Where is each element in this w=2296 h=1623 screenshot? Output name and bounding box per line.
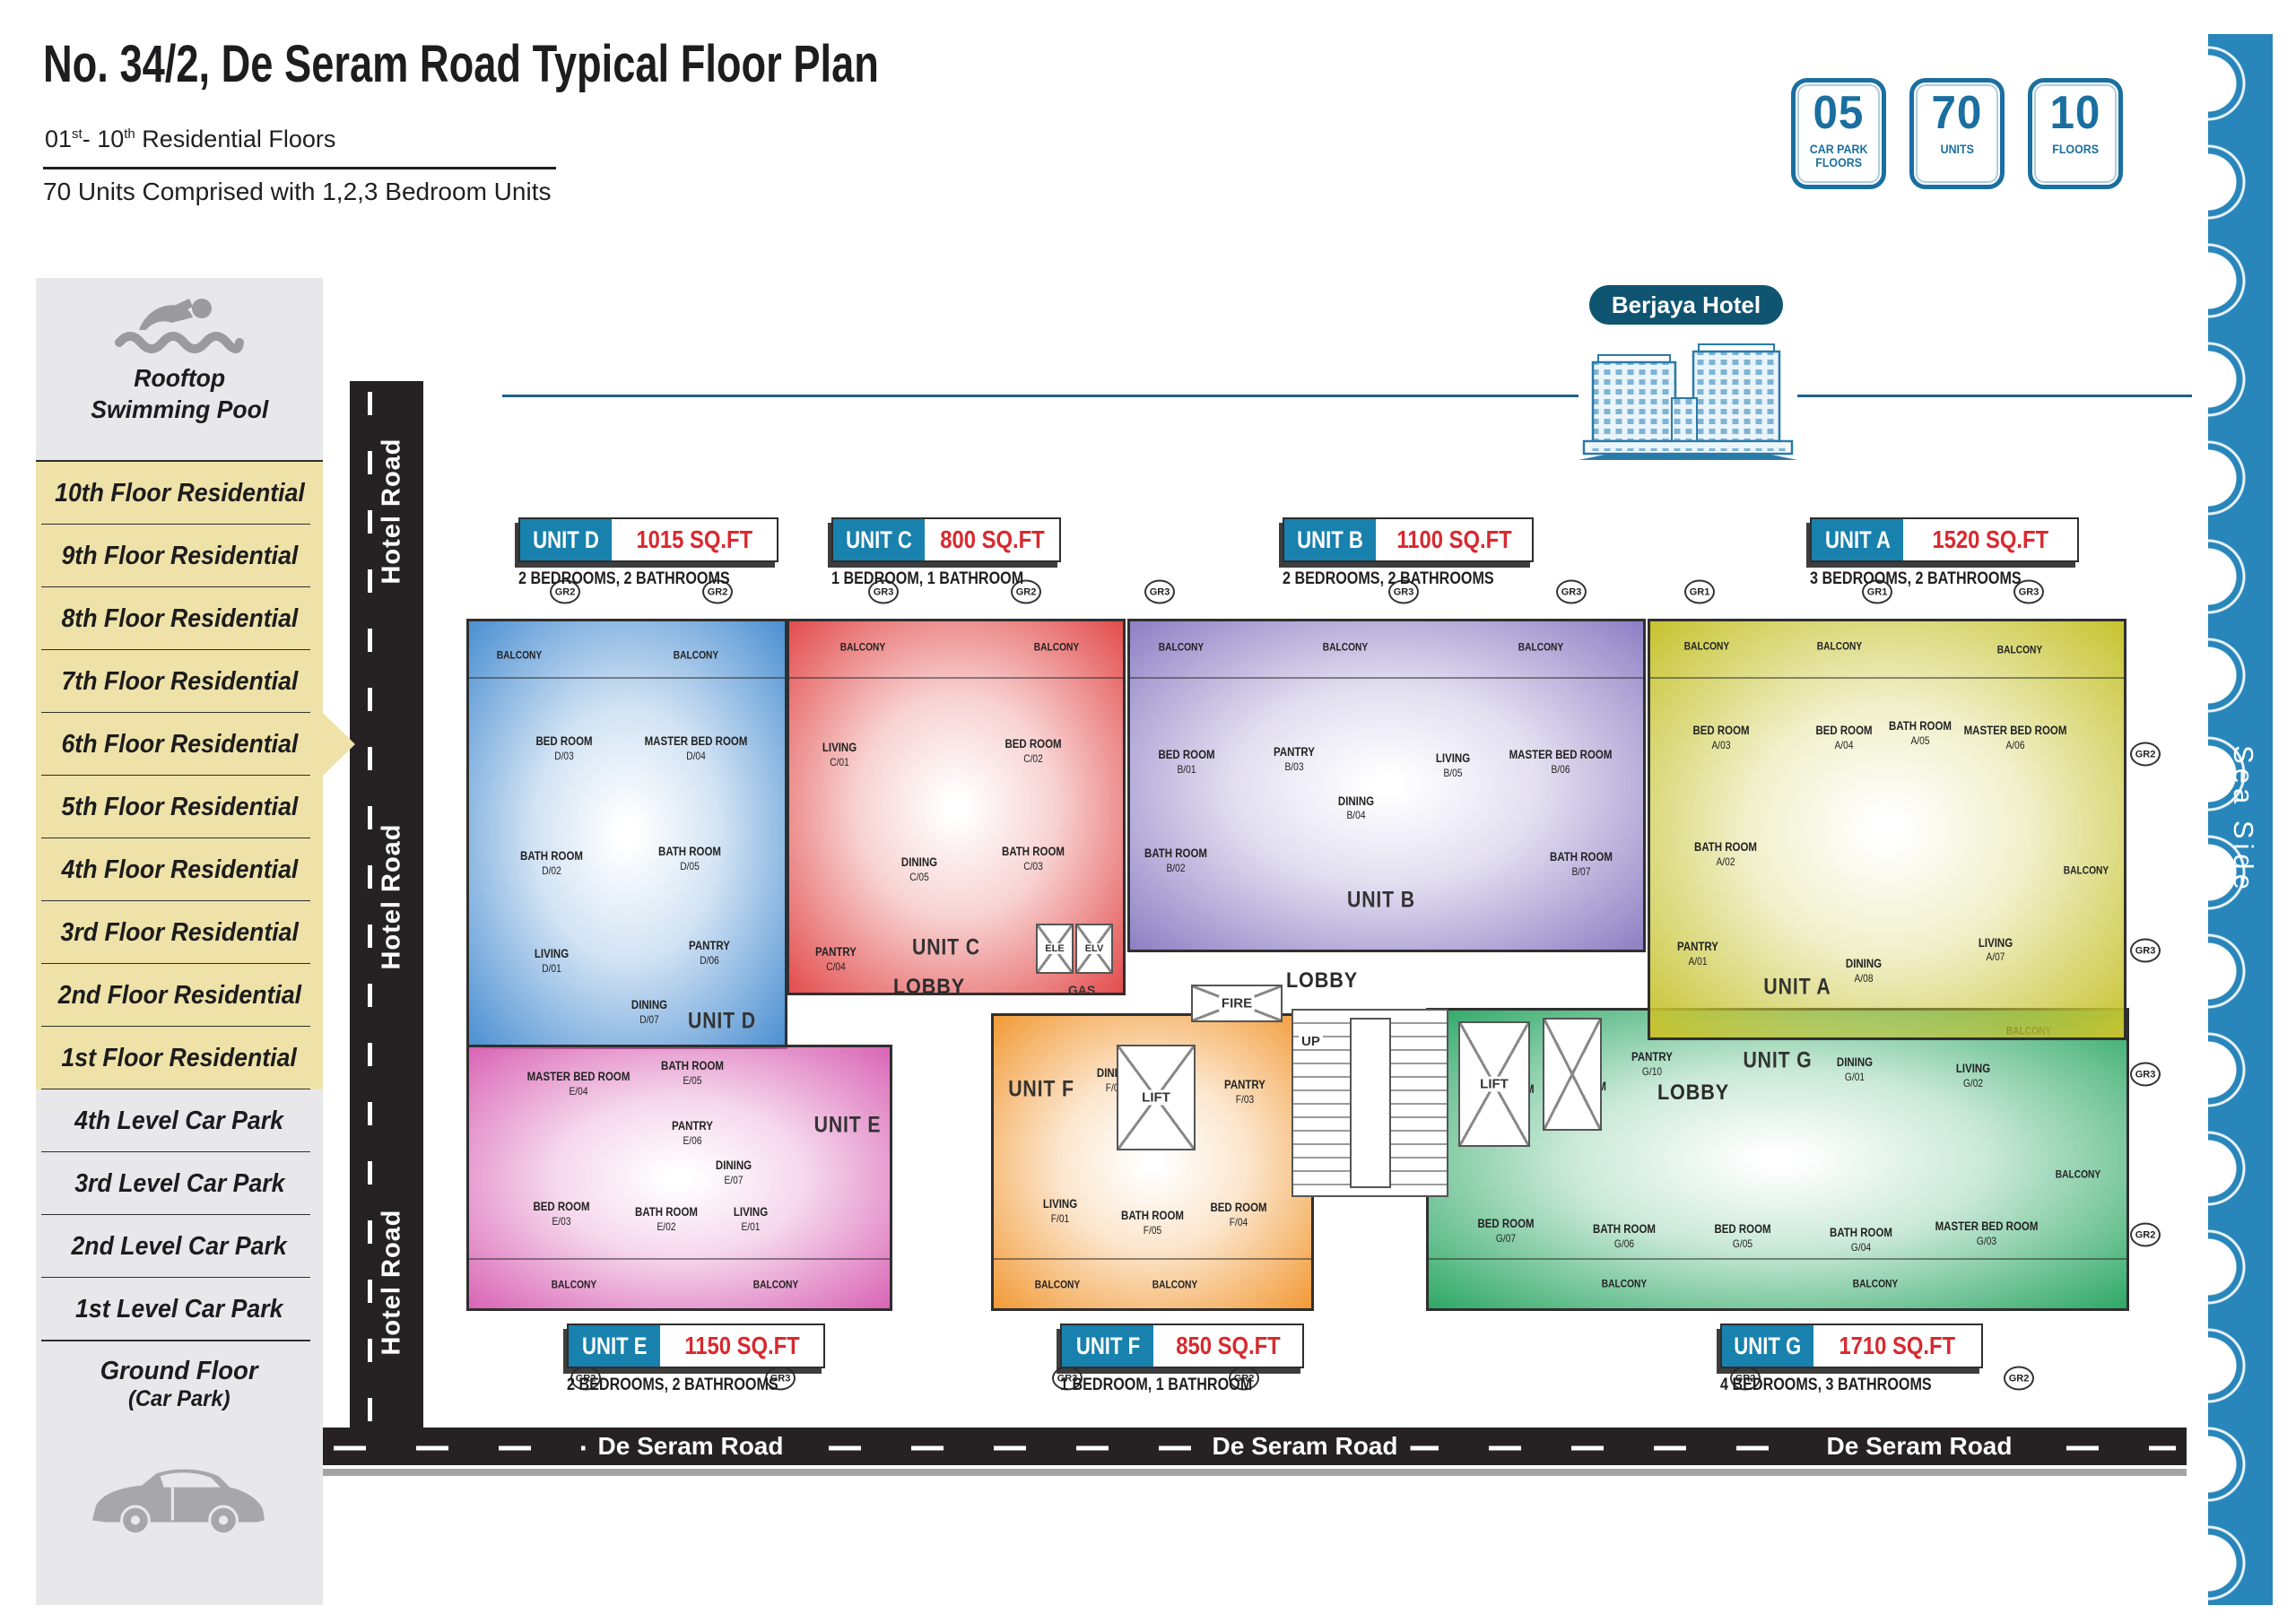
room-label: BED ROOMD/03 xyxy=(535,734,592,763)
unit-a-area: BALCONYBALCONYBALCONYBED ROOMA/03BED ROO… xyxy=(1648,619,2126,1040)
unit-name-label: UNIT B xyxy=(1347,888,1415,914)
grid-marker: GR2 xyxy=(2130,742,2161,767)
balcony-divider xyxy=(469,677,785,679)
unit-label-name: UNIT D xyxy=(520,519,612,560)
fire-lobby: FIRE xyxy=(1191,985,1283,1022)
room-label: DININGD/07 xyxy=(631,998,667,1027)
unit-config-label: 2 BEDROOMS, 2 BATHROOMS xyxy=(518,569,730,589)
room-label: PANTRYB/03 xyxy=(1274,745,1315,774)
unit-e-label-box: UNIT E1150 SQ.FT xyxy=(567,1324,825,1368)
balcony-divider xyxy=(1130,677,1643,679)
unit-a-label-box: UNIT A1520 SQ.FT xyxy=(1810,517,2079,562)
lift-shaft: LIFT xyxy=(1458,1021,1530,1147)
lobby-label: LOBBY xyxy=(1286,968,1358,994)
room-label: BED ROOMB/01 xyxy=(1158,748,1214,777)
hotel-towers-icon xyxy=(1578,328,1797,463)
room-label: BED ROOMC/02 xyxy=(1004,737,1061,766)
gas-label: GAS xyxy=(1068,983,1095,997)
grid-marker: GR2 xyxy=(2130,1223,2161,1247)
room-label: BED ROOMG/05 xyxy=(1715,1222,1771,1251)
room-label: MASTER BED ROOME/04 xyxy=(527,1070,631,1098)
room-label: BATH ROOMA/02 xyxy=(1695,840,1758,869)
room-label: LIVINGD/01 xyxy=(534,947,568,976)
room-label: BALCONY xyxy=(2064,864,2109,878)
room-label: BALCONY xyxy=(1684,639,1729,653)
room-label: BATH ROOME/05 xyxy=(661,1059,724,1088)
room-label: BED ROOME/03 xyxy=(534,1200,590,1228)
unit-label-area: 1150 SQ.FT xyxy=(660,1325,823,1367)
unit-config-label: 2 BEDROOMS, 2 BATHROOMS xyxy=(567,1376,778,1395)
room-label: PANTRYD/06 xyxy=(689,939,730,968)
unit-name-label: UNIT G xyxy=(1743,1048,1812,1074)
room-label: BALCONY xyxy=(1817,639,1862,653)
unit-label-name: UNIT A xyxy=(1812,519,1903,560)
room-label: MASTER BED ROOMB/06 xyxy=(1509,748,1613,777)
balcony-divider xyxy=(789,677,1123,679)
room-label: DININGA/08 xyxy=(1846,957,1882,985)
unit-config-label: 2 BEDROOMS, 2 BATHROOMS xyxy=(1283,569,1494,589)
unit-d-label-box: UNIT D1015 SQ.FT xyxy=(518,517,778,562)
unit-label-name: UNIT E xyxy=(569,1325,660,1367)
unit-config-label: 1 BEDROOM, 1 BATHROOM xyxy=(1060,1376,1252,1395)
unit-b-label-box: UNIT B1100 SQ.FT xyxy=(1283,517,1534,562)
room-label: BED ROOMA/04 xyxy=(1816,724,1873,752)
unit-d-area: BALCONYBALCONYBED ROOMD/03MASTER BED ROO… xyxy=(466,619,787,1049)
room-label: BED ROOMG/07 xyxy=(1477,1217,1534,1245)
lobby-label: LOBBY xyxy=(893,975,965,1000)
room-label: BALCONY xyxy=(2055,1167,2100,1181)
unit-label-area: 1015 SQ.FT xyxy=(612,519,777,560)
lift-shaft: LIFT xyxy=(1117,1045,1196,1150)
room-label: BALCONY xyxy=(1033,640,1078,654)
room-label: MASTER BED ROOMD/04 xyxy=(645,734,748,763)
room-label: BALCONY xyxy=(753,1278,798,1291)
room-label: BATH ROOMG/06 xyxy=(1593,1222,1656,1251)
unit-name-label: UNIT F xyxy=(1008,1076,1074,1102)
room-label: BALCONY xyxy=(1159,641,1204,655)
grid-marker: GR2 xyxy=(2004,1367,2034,1391)
stair-rail xyxy=(1350,1018,1391,1188)
room-label: BALCONY xyxy=(1323,641,1368,655)
room-label: PANTRYF/03 xyxy=(1224,1078,1265,1107)
room-label: DININGC/05 xyxy=(901,855,937,884)
balcony-divider xyxy=(469,1258,890,1260)
room-label: LIVINGF/01 xyxy=(1043,1197,1077,1226)
room-label: PANTRYA/01 xyxy=(1677,940,1718,968)
grid-marker: GR3 xyxy=(2130,1063,2161,1087)
shaft-label: ELV xyxy=(1083,943,1107,954)
room-label: LIVINGG/02 xyxy=(1956,1062,1990,1090)
unit-name-label: UNIT D xyxy=(688,1008,756,1034)
room-label: BALCONY xyxy=(1035,1278,1080,1291)
room-label: DININGB/04 xyxy=(1338,794,1374,823)
unit-name-label: UNIT C xyxy=(912,935,980,961)
room-label: PANTRYC/04 xyxy=(815,945,857,974)
room-label: BATH ROOMC/03 xyxy=(1002,845,1065,873)
unit-label-name: UNIT C xyxy=(833,519,925,560)
unit-config-label: 3 BEDROOMS, 2 BATHROOMS xyxy=(1810,569,2022,589)
room-label: BALCONY xyxy=(552,1278,596,1291)
room-label: BATH ROOMA/05 xyxy=(1889,719,1952,748)
room-label: BALCONY xyxy=(674,648,718,662)
grid-marker: GR3 xyxy=(1144,580,1175,604)
room-label: BATH ROOMD/02 xyxy=(520,849,583,878)
floor-plan-poster: { "accent": {"blue":"#1a6fa0","teal":"#1… xyxy=(0,0,2296,1623)
unit-config-label: 1 BEDROOM, 1 BATHROOM xyxy=(831,569,1023,589)
balcony-divider xyxy=(994,1258,1311,1260)
unit-name-label: UNIT A xyxy=(1763,975,1831,1001)
room-label: BALCONY xyxy=(1152,1278,1197,1291)
shaft-label: ELE xyxy=(1042,943,1066,954)
grid-marker: GR3 xyxy=(2130,939,2161,963)
unit-label-area: 850 SQ.FT xyxy=(1153,1325,1302,1367)
unit-config-label: 4 BEDROOMS, 3 BATHROOMS xyxy=(1720,1376,1932,1395)
lift-label: LIFT xyxy=(1477,1077,1511,1092)
unit-f-label-box: UNIT F850 SQ.FT xyxy=(1060,1324,1304,1368)
room-label: BALCONY xyxy=(1853,1278,1898,1291)
room-label: BALCONY xyxy=(1602,1278,1647,1291)
fire-label: FIRE xyxy=(1219,996,1255,1011)
room-label: MASTER BED ROOMA/06 xyxy=(1963,724,2066,752)
unit-label-name: UNIT G xyxy=(1722,1325,1813,1367)
stairs-up-label: UP xyxy=(1299,1034,1323,1049)
floor-plan: BALCONYBALCONYBED ROOMD/03MASTER BED ROO… xyxy=(0,0,2296,1623)
grid-marker: GR1 xyxy=(1684,580,1715,604)
room-label: DININGE/07 xyxy=(716,1159,752,1187)
grid-marker: GR3 xyxy=(1556,580,1587,604)
room-label: BATH ROOMF/05 xyxy=(1121,1210,1184,1238)
room-label: LIVINGB/05 xyxy=(1436,751,1470,780)
room-label: BED ROOMA/03 xyxy=(1693,724,1750,752)
unit-c-label-box: UNIT C800 SQ.FT xyxy=(831,517,1061,562)
room-label: PANTRYE/06 xyxy=(672,1119,713,1148)
lift-label: LIFT xyxy=(1139,1090,1173,1106)
room-label: BALCONY xyxy=(840,640,885,654)
room-label: BALCONY xyxy=(497,648,542,662)
room-label: LIVINGC/01 xyxy=(822,741,857,769)
unit-g-area: PANTRYG/10DININGG/01LIVINGG/02BED ROOMG/… xyxy=(1426,1008,2129,1311)
room-label: BATH ROOMB/02 xyxy=(1145,846,1208,875)
unit-label-area: 1520 SQ.FT xyxy=(1903,519,2077,560)
room-label: BED ROOMF/04 xyxy=(1210,1201,1266,1229)
room-label: BATH ROOMD/05 xyxy=(658,846,721,874)
unit-label-area: 1710 SQ.FT xyxy=(1813,1325,1981,1367)
lobby-label: LOBBY xyxy=(1657,1081,1729,1106)
unit-label-name: UNIT B xyxy=(1284,519,1376,560)
lift-shaft xyxy=(1543,1018,1602,1131)
hotel-name-badge: Berjaya Hotel xyxy=(1589,285,1783,325)
room-label: LIVINGE/01 xyxy=(734,1205,768,1234)
unit-label-area: 800 SQ.FT xyxy=(925,519,1059,560)
unit-g-label-box: UNIT G1710 SQ.FT xyxy=(1720,1324,1983,1368)
room-label: BATH ROOME/02 xyxy=(635,1205,698,1234)
room-label: BALCONY xyxy=(1518,641,1562,655)
room-label: BATH ROOMB/07 xyxy=(1550,850,1613,879)
balcony-divider xyxy=(1650,677,2124,679)
unit-e-area: MASTER BED ROOME/04BATH ROOME/05PANTRYE/… xyxy=(466,1045,892,1311)
unit-b-area: BALCONYBALCONYBALCONYBED ROOMB/01PANTRYB… xyxy=(1127,619,1646,952)
room-label: PANTRYG/10 xyxy=(1631,1050,1673,1079)
room-label: MASTER BED ROOMG/03 xyxy=(1935,1219,2039,1248)
unit-name-label: UNIT E xyxy=(814,1113,882,1139)
unit-label-area: 1100 SQ.FT xyxy=(1376,519,1532,560)
unit-label-name: UNIT F xyxy=(1062,1325,1153,1367)
room-label: LIVINGA/07 xyxy=(1979,936,2013,965)
room-label: BALCONY xyxy=(1997,644,2042,657)
elevator-shaft: ELV xyxy=(1075,924,1113,974)
staircase: UP xyxy=(1291,1009,1448,1197)
balcony-divider xyxy=(1429,1258,2126,1260)
room-label: DININGG/01 xyxy=(1836,1055,1872,1084)
room-label: BATH ROOMG/04 xyxy=(1830,1226,1892,1254)
elevator-shaft: ELE xyxy=(1036,924,1074,974)
